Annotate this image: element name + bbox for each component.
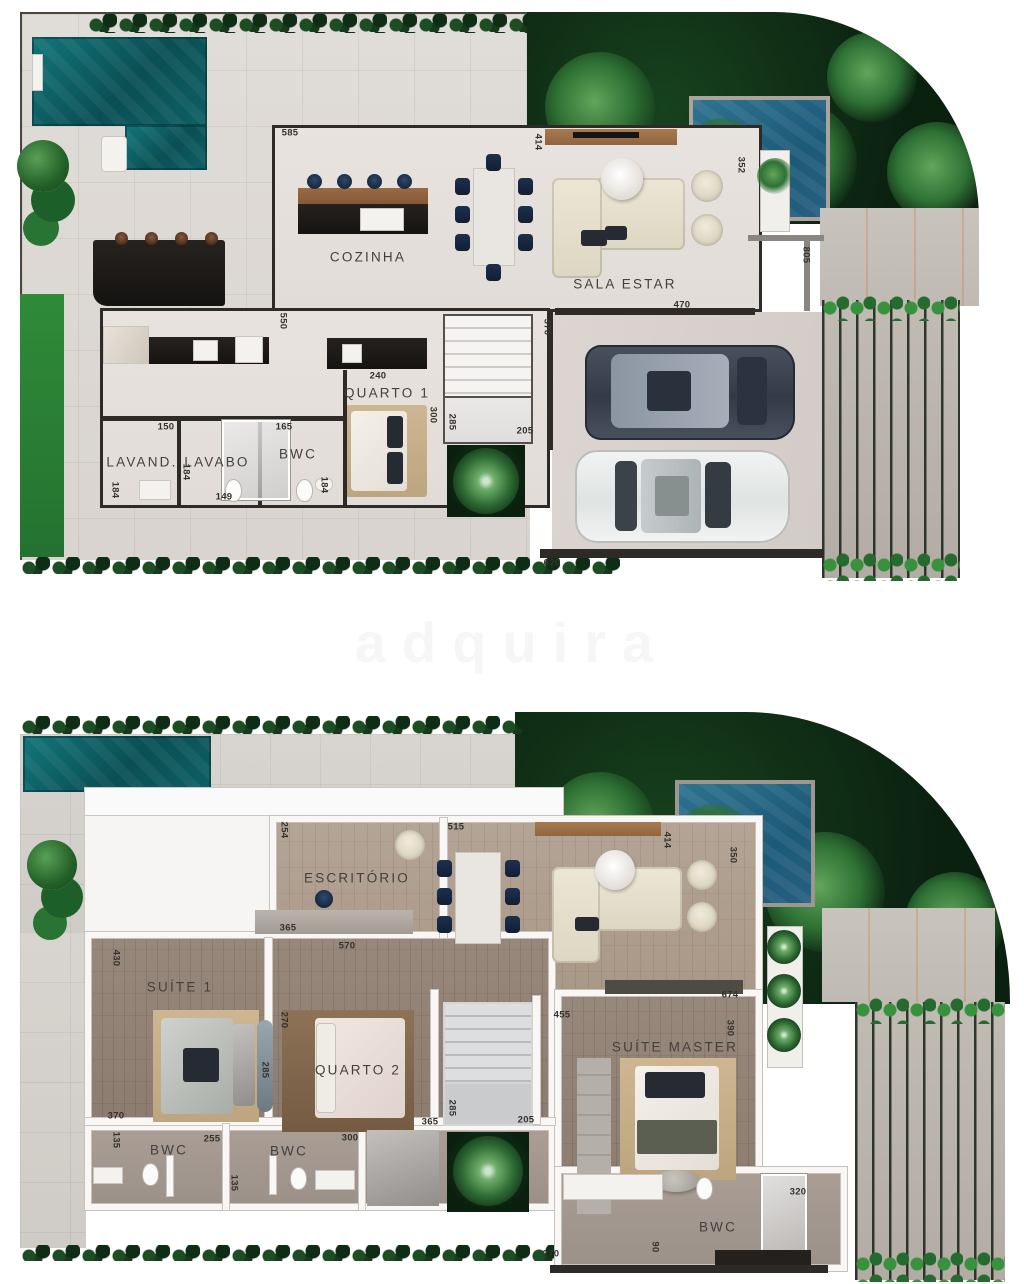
dimension-label: 184 [110, 482, 121, 499]
dimension-label: 270 [543, 1249, 560, 1260]
sofa-chaise [552, 178, 602, 278]
bed-pillow-icon [387, 416, 403, 448]
coffee-table [601, 158, 643, 200]
granite-counter [103, 326, 149, 364]
dimension-label: 455 [554, 1010, 571, 1021]
room-label: BWC [150, 1143, 188, 1158]
dining-chair-icon [455, 234, 470, 251]
dimension-label: 390 [725, 1020, 736, 1037]
sedan-windshield [705, 462, 731, 528]
pouf-chair-icon [691, 214, 723, 246]
sala-garage-wall [555, 308, 755, 315]
room-label: ESCRITÓRIO [304, 871, 410, 886]
dimension-label: 585 [282, 128, 299, 139]
toilet-icon [291, 1168, 306, 1189]
glass-guard [367, 1130, 439, 1206]
dimension-label: 365 [280, 923, 297, 934]
dimension-label: 300 [342, 1133, 359, 1144]
island-stool-icon [397, 174, 412, 189]
dining-chair-icon [486, 154, 501, 171]
sedan-rear-glass [615, 461, 637, 531]
dimension-label: 470 [674, 300, 691, 311]
room-label: BWC [699, 1220, 737, 1235]
room-label: QUARTO 2 [315, 1063, 401, 1078]
dimension-label: 205 [518, 1115, 535, 1126]
wall [177, 416, 181, 506]
main-pool-extension [125, 125, 207, 170]
dimension-label: 135 [111, 1132, 122, 1149]
bar-stool-icon [205, 232, 218, 245]
dining-chair-icon [437, 916, 452, 933]
driveway-pavement [820, 208, 979, 306]
dimension-label: 350 [728, 847, 739, 864]
hedge-top [87, 14, 527, 33]
suv-sunroof [647, 371, 691, 411]
dimension-label: 90 [650, 1241, 661, 1252]
dining-table [455, 852, 501, 944]
main-pool [32, 37, 207, 126]
dimension-label: 550 [278, 313, 289, 330]
sedan-sunroof [655, 476, 689, 516]
side-deck [822, 300, 960, 578]
dining-table [473, 168, 515, 266]
kitchen-sink [193, 340, 218, 361]
hedge-bottom [20, 557, 620, 574]
side-deck [855, 1002, 1005, 1280]
dining-chair-icon [505, 860, 520, 877]
vanity [315, 1170, 355, 1190]
headboard [233, 1024, 255, 1106]
palm-icon [767, 1018, 801, 1052]
dining-chair-icon [518, 178, 533, 195]
room-label: SUÍTE 1 [147, 980, 213, 995]
dimension-label: 300 [428, 407, 439, 424]
sofa-pillow-icon [605, 226, 627, 240]
dining-chair-icon [518, 234, 533, 251]
sofa-pillow-icon [581, 230, 607, 246]
dining-chair-icon [455, 206, 470, 223]
shower-tray [93, 1167, 123, 1184]
deck-grass-top [855, 998, 1005, 1024]
dimension-label: 570 [542, 319, 553, 336]
dimension-label: 165 [276, 422, 293, 433]
deck-grass-bottom [855, 1252, 1005, 1282]
bar-stool-icon [175, 232, 188, 245]
tree-icon [27, 840, 77, 890]
kitchen-island-top [298, 188, 428, 204]
main-pool-partial [23, 736, 211, 792]
pouf-chair-icon [691, 170, 723, 202]
planter-plant-icon [757, 158, 793, 194]
tree-icon [17, 140, 69, 192]
palm-icon [453, 1136, 523, 1206]
dimension-label: 620 [544, 558, 561, 569]
bottom-wall [550, 1265, 828, 1273]
island-stool-icon [307, 174, 322, 189]
roof-band [85, 788, 563, 818]
tv-sideboard [535, 822, 661, 836]
dimension-label: 674 [722, 990, 739, 1001]
dimension-label: 365 [422, 1117, 439, 1128]
side-path [20, 932, 86, 1248]
dimension-label: 184 [181, 464, 192, 481]
dimension-label: 430 [111, 950, 122, 967]
dimension-label: 370 [108, 1111, 125, 1122]
shower-mat [715, 1250, 811, 1265]
dimension-label: 149 [216, 492, 233, 503]
room-label: QUARTO 1 [344, 386, 430, 401]
wall [533, 996, 540, 1124]
room-label: SALA ESTAR [573, 277, 677, 292]
room-label: LAVABO [184, 455, 249, 470]
dining-chair-icon [437, 888, 452, 905]
pouf-chair-icon [687, 902, 717, 932]
dimension-label: 414 [662, 832, 673, 849]
coffee-table [595, 850, 635, 890]
deck-grass-top [822, 296, 960, 321]
sofa-chaise [552, 867, 600, 963]
suv-car [585, 345, 795, 440]
pool-steps [32, 54, 43, 91]
island-stool-icon [337, 174, 352, 189]
dimension-label: 240 [370, 371, 387, 382]
island-stool-icon [367, 174, 382, 189]
palm-cluster-icon [887, 122, 979, 222]
bed-blanket-icon [637, 1120, 717, 1154]
counter-sink [342, 344, 362, 363]
deck-grass-bottom [822, 553, 960, 581]
outdoor-bar-counter [93, 240, 225, 306]
garage-bottom-wall [540, 549, 824, 558]
dimension-label: 254 [279, 822, 290, 839]
dimension-label: 184 [319, 477, 330, 494]
wall [223, 1124, 229, 1210]
palm-icon [453, 448, 519, 514]
watermark: adquira [355, 610, 669, 675]
dimension-label: 285 [447, 414, 458, 431]
sedan-car [575, 450, 790, 543]
office-pouf-icon [395, 830, 425, 860]
grass-strip-left [20, 294, 64, 557]
tv-icon [573, 132, 639, 138]
hedge-top [20, 716, 532, 734]
entry-wall-h [748, 235, 824, 241]
roof-block [85, 816, 273, 936]
dining-chair-icon [518, 206, 533, 223]
dining-chair-icon [505, 916, 520, 933]
dimension-label: 805 [801, 247, 812, 264]
dimension-label: 135 [229, 1175, 240, 1192]
upper-floor-plan: ESCRITÓRIOSUÍTE 1QUARTO 2SUÍTE MASTERBWC… [15, 712, 1010, 1284]
palm-cluster-icon [827, 32, 917, 122]
wall [431, 990, 438, 1124]
room-label: LAVAND. [106, 455, 177, 470]
island-range [360, 208, 404, 231]
bed-pillow-icon [645, 1072, 705, 1098]
dimension-label: 255 [204, 1134, 221, 1145]
suv-windshield [737, 357, 767, 425]
pouf-chair-icon [687, 860, 717, 890]
palm-icon [767, 930, 801, 964]
toilet-icon [297, 480, 312, 501]
stairs [443, 1002, 533, 1084]
dimension-label: 285 [260, 1062, 271, 1079]
dimension-label: 570 [339, 941, 356, 952]
room-label: SUÍTE MASTER [612, 1040, 738, 1055]
room-label: COZINHA [330, 250, 406, 265]
washer [139, 480, 171, 500]
wall-stub [167, 1156, 173, 1196]
toilet-icon [143, 1164, 158, 1185]
bar-stool-icon [145, 232, 158, 245]
bar-stool-icon [115, 232, 128, 245]
dining-chair-icon [505, 888, 520, 905]
ground-floor-plan: COZINHASALA ESTARQUARTO 1LAVAND.LAVABOBW… [15, 8, 975, 590]
office-chair-icon [315, 890, 333, 908]
room-label: BWC [270, 1144, 308, 1159]
room-label: BWC [279, 447, 317, 462]
toilet-icon [697, 1178, 712, 1199]
palm-icon [767, 974, 801, 1008]
stairs [443, 314, 533, 398]
dimension-label: 414 [533, 134, 544, 151]
wall-stub [270, 1156, 276, 1194]
dimension-label: 352 [736, 157, 747, 174]
dining-chair-icon [437, 860, 452, 877]
rear-pavement [822, 908, 995, 1002]
dimension-label: 285 [447, 1100, 458, 1117]
dimension-label: 320 [790, 1187, 807, 1198]
hedge-bottom [20, 1245, 560, 1261]
bed-pillow-icon [183, 1048, 219, 1082]
dining-chair-icon [455, 178, 470, 195]
bed-pillow-icon [387, 452, 403, 484]
master-vanity [563, 1174, 663, 1200]
sofa-pillow-icon [575, 917, 599, 931]
wall [359, 1124, 365, 1210]
dimension-label: 270 [279, 1012, 290, 1029]
dimension-label: 150 [158, 422, 175, 433]
floorplan-canvas: COZINHASALA ESTARQUARTO 1LAVAND.LAVABOBW… [0, 0, 1024, 1284]
patio-table [101, 136, 127, 172]
dimension-label: 205 [517, 426, 534, 437]
dimension-label: 515 [448, 822, 465, 833]
fridge [235, 336, 263, 363]
dining-chair-icon [486, 264, 501, 281]
